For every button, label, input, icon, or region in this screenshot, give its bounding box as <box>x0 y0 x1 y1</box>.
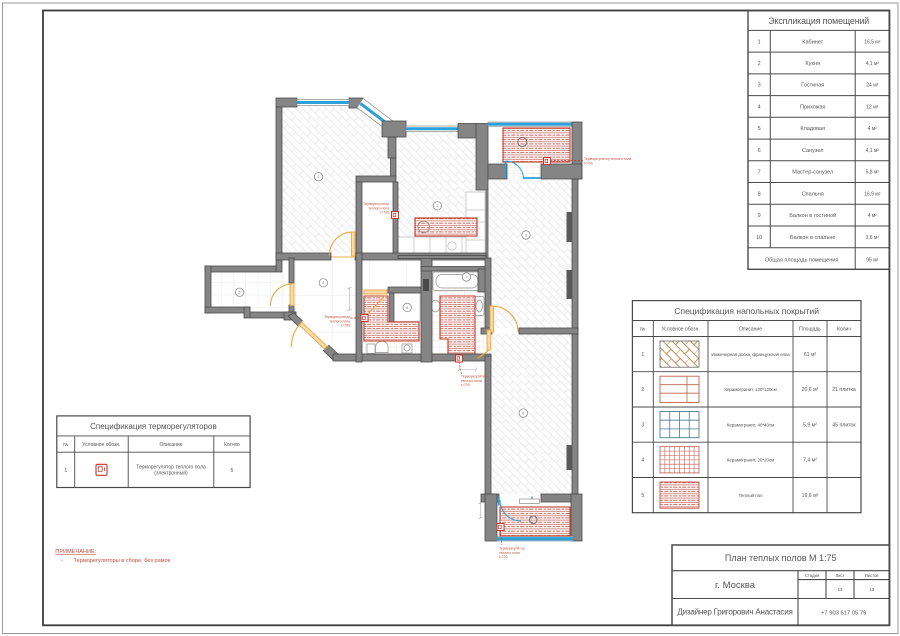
svg-text:Общая площадь помещения: Общая площадь помещения <box>765 258 839 264</box>
svg-text:(электронный): (электронный) <box>154 470 188 477</box>
svg-text:5: 5 <box>239 291 241 295</box>
svg-text:16,9 м²: 16,9 м² <box>864 191 881 197</box>
svg-text:3: 3 <box>758 83 761 89</box>
svg-text:t=700: t=700 <box>584 161 593 165</box>
svg-text:Дизайнер Григорович Анастасия: Дизайнер Григорович Анастасия <box>677 608 792 617</box>
svg-text:8: 8 <box>758 191 761 197</box>
svg-text:Стадия: Стадия <box>805 573 819 578</box>
svg-text:7: 7 <box>465 275 467 279</box>
svg-text:7: 7 <box>758 170 761 176</box>
svg-text:5,8 м²: 5,8 м² <box>866 170 880 176</box>
svg-text:Керамогранит, 40*40см: Керамогранит, 40*40см <box>727 422 774 427</box>
svg-text:t=700: t=700 <box>341 324 350 328</box>
svg-text:Спальня: Спальня <box>802 191 824 197</box>
svg-text:1: 1 <box>758 39 761 45</box>
svg-text:№: № <box>63 442 68 448</box>
svg-text:Условное обозн.: Условное обозн. <box>82 442 120 448</box>
svg-text:6: 6 <box>758 148 761 154</box>
svg-text:Керамогранит, 120*120см: Керамогранит, 120*120см <box>724 387 776 392</box>
svg-text:№: № <box>640 327 645 333</box>
svg-text:4 м²: 4 м² <box>868 213 878 219</box>
svg-text:t=700: t=700 <box>380 211 389 215</box>
svg-text:19,6 м²: 19,6 м² <box>802 493 819 499</box>
svg-text:3: 3 <box>525 233 527 237</box>
svg-text:Описание: Описание <box>739 327 762 333</box>
svg-text:8: 8 <box>522 412 524 416</box>
svg-text:4: 4 <box>758 105 761 111</box>
svg-text:4 м²: 4 м² <box>868 126 878 132</box>
svg-text:5: 5 <box>230 468 233 474</box>
svg-text:Экспликация помещений: Экспликация помещений <box>768 16 869 26</box>
svg-text:3,6 м²: 3,6 м² <box>866 235 880 241</box>
svg-text:t=700: t=700 <box>461 383 470 387</box>
svg-text:Гостиная: Гостиная <box>801 83 824 89</box>
svg-text:Санузел: Санузел <box>802 148 823 154</box>
svg-text:План теплых полов М 1:75: План теплых полов М 1:75 <box>725 553 837 563</box>
svg-text:13: 13 <box>837 587 843 592</box>
svg-text:3: 3 <box>641 422 644 428</box>
svg-text:Спецификация терморегуляторов: Спецификация терморегуляторов <box>90 422 217 431</box>
svg-text:Кухня: Кухня <box>805 61 820 67</box>
svg-text:1: 1 <box>641 352 644 358</box>
svg-text:45 плиток: 45 плиток <box>832 422 856 428</box>
svg-text:2: 2 <box>641 387 644 393</box>
svg-text:Мастер-санузел: Мастер-санузел <box>792 170 833 176</box>
svg-text:Керамогранит, 20*20см: Керамогранит, 20*20см <box>727 458 774 463</box>
svg-text:5: 5 <box>758 126 761 132</box>
svg-text:95 м²: 95 м² <box>866 258 878 264</box>
svg-text:Площадь: Площадь <box>799 327 821 333</box>
svg-text:4: 4 <box>641 458 644 464</box>
svg-text:6: 6 <box>406 306 408 310</box>
svg-text:ПРИМЕЧАНИЕ:: ПРИМЕЧАНИЕ: <box>55 549 96 555</box>
svg-text:Колич: Колич <box>837 327 851 333</box>
svg-text:1: 1 <box>64 468 67 474</box>
svg-text:-: - <box>61 558 63 564</box>
svg-text:Описание: Описание <box>159 442 182 448</box>
svg-text:t=700: t=700 <box>499 555 508 559</box>
svg-text:16,5 м²: 16,5 м² <box>864 39 881 45</box>
svg-text:4,1 м²: 4,1 м² <box>866 61 880 67</box>
svg-text:4,1 м²: 4,1 м² <box>866 148 880 154</box>
svg-text:21 плитка: 21 плитка <box>832 387 856 393</box>
svg-text:Теплый пол: Теплый пол <box>738 492 762 498</box>
svg-text:Кладовая: Кладовая <box>800 126 825 132</box>
svg-text:20,6 м²: 20,6 м² <box>802 387 819 393</box>
svg-text:Лист: Лист <box>835 573 844 578</box>
svg-text:Спецификация напольных покрыти: Спецификация напольных покрытий <box>674 306 819 316</box>
svg-text:2: 2 <box>436 204 438 208</box>
svg-text:Инженерная доска, французская: Инженерная доска, французская елка <box>711 352 790 357</box>
svg-text:24 м²: 24 м² <box>866 83 878 89</box>
svg-text:Листов: Листов <box>865 573 879 578</box>
svg-text:Кабинет: Кабинет <box>802 39 823 45</box>
svg-text:61 м²: 61 м² <box>804 352 817 358</box>
svg-text:7,4 м²: 7,4 м² <box>803 458 817 464</box>
svg-text:г. Москва: г. Москва <box>715 580 756 591</box>
svg-text:5,9 м²: 5,9 м² <box>803 422 817 428</box>
svg-text:Балкон в спальне: Балкон в спальне <box>790 235 835 241</box>
svg-text:4: 4 <box>322 281 324 285</box>
svg-text:Прихожая: Прихожая <box>800 105 826 111</box>
svg-text:+7 903 617 05 79: +7 903 617 05 79 <box>821 611 866 617</box>
svg-text:2: 2 <box>758 61 761 67</box>
svg-text:9: 9 <box>758 213 761 219</box>
svg-text:Балкон в гостиной: Балкон в гостиной <box>789 212 836 219</box>
svg-text:13: 13 <box>869 587 875 592</box>
svg-text:Терморегуляторы в сборе, без р: Терморегуляторы в сборе, без рамок <box>74 558 171 564</box>
svg-text:Условное обозн.: Условное обозн. <box>661 327 699 333</box>
svg-text:10: 10 <box>756 235 762 241</box>
svg-text:1: 1 <box>317 175 319 179</box>
svg-text:5: 5 <box>641 493 644 499</box>
svg-text:12 м²: 12 м² <box>866 105 878 111</box>
svg-text:Кол-во: Кол-во <box>224 442 240 448</box>
